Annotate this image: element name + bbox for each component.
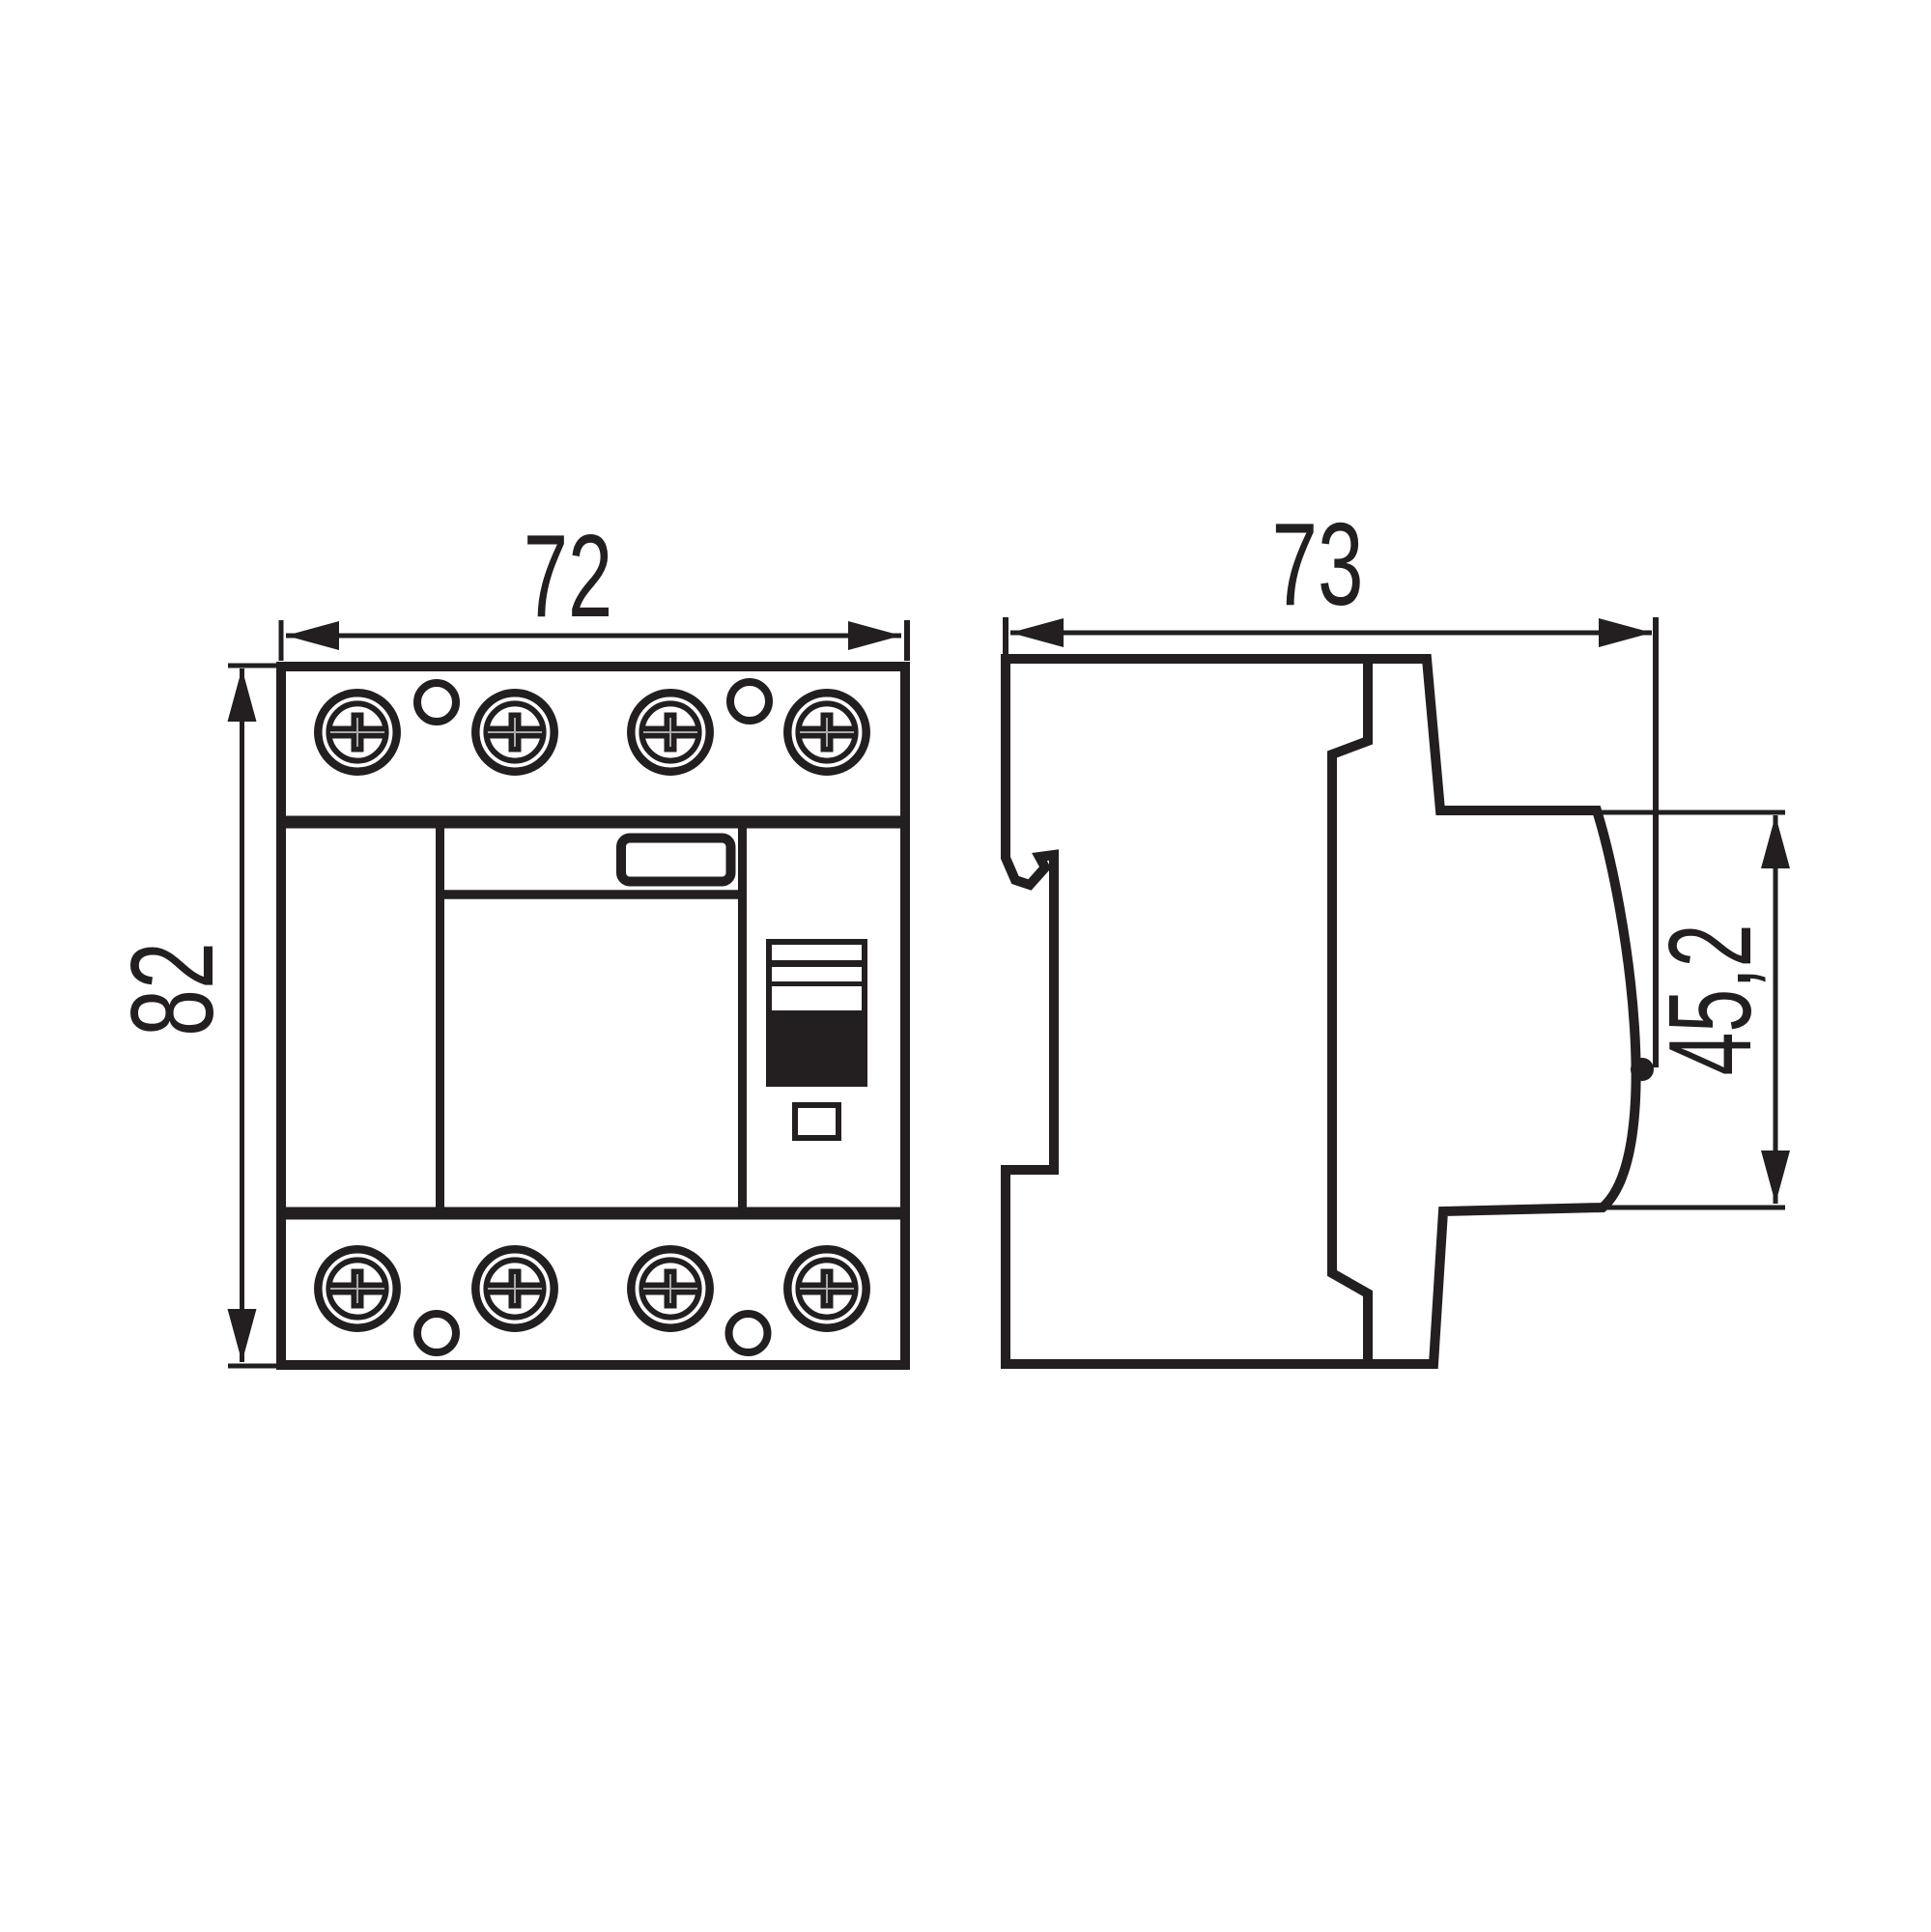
svg-text:45,2: 45,2 (1643, 924, 1775, 1076)
svg-text:73: 73 (1272, 499, 1364, 631)
svg-text:82: 82 (106, 942, 239, 1037)
svg-text:72: 72 (524, 511, 612, 642)
